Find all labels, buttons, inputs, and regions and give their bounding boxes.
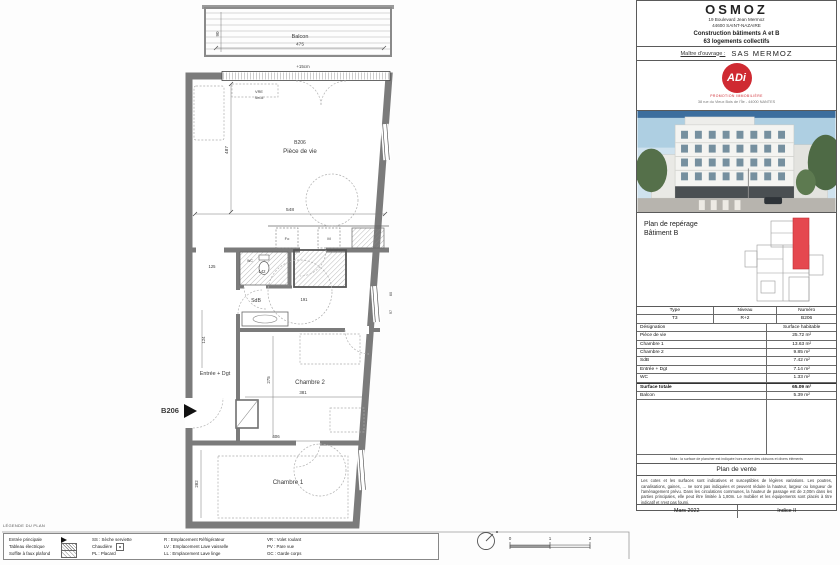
table-row: WC1.33 m² [637, 374, 836, 382]
svg-text:406: 406 [272, 434, 280, 439]
legend-col4: VR : Volet roulant PV : Pare vue GC : Ga… [267, 536, 301, 557]
val-numero: B206 [776, 315, 836, 322]
col-niveau: Niveau [713, 307, 777, 314]
table-row: Chambre 29.85 m² [637, 349, 836, 357]
val-niveau: R+2 [713, 315, 777, 322]
wc-label: WC [247, 259, 253, 263]
svg-text:1: 1 [549, 536, 552, 541]
living-room-label: Pièce de vie [283, 148, 317, 155]
legend-item: LV : Emplacement Lave vaisselle [164, 544, 228, 549]
legend-title: LÉGENDE DU PLAN [3, 523, 45, 528]
balcony-depth-dim: 90 [215, 31, 220, 37]
legend-col2: SS : Sèche serviette Chaudière PL : Plac… [92, 536, 132, 557]
adi-address: 38 rue du Vieux Bois de l'Île - 44000 NA… [637, 100, 836, 104]
maitre-ouvrage-value: SAS MERMOZ [731, 49, 792, 58]
legend-item: Soffite à faux plafond [9, 551, 55, 556]
svg-text:191: 191 [301, 297, 309, 302]
floor-plan-drawing: Balcon 475 90 +15cm VRE Seuil [0, 0, 635, 560]
north-arrow-icon [478, 531, 499, 550]
table-header-row: Type Niveau Numéro [637, 307, 836, 315]
adi-logo: ADi [722, 63, 752, 93]
seuil-note: Seuil [255, 95, 264, 100]
maitre-ouvrage-row: Maître d'ouvrage : SAS MERMOZ [637, 47, 836, 61]
plan-de-vente-title: Plan de vente [637, 464, 836, 476]
micro-label: M [327, 236, 330, 241]
maitre-ouvrage-label: Maître d'ouvrage : [681, 51, 726, 57]
boiler-icon [116, 543, 124, 551]
adi-slogan: PROMOTION IMMOBILIÈRE [637, 94, 836, 98]
svg-text:125: 125 [209, 264, 217, 269]
table-row: Pièce de vie25.72 m² [637, 332, 836, 340]
legend-col3: R : Emplacement Réfrigérateur LV : Empla… [164, 536, 228, 557]
legend: Entrée principale Tableau électrique Sof… [3, 533, 439, 560]
highlighted-unit [793, 218, 809, 269]
date-indice-row: Mars 2022 Indice II [637, 505, 836, 518]
table-value-row: T3 R+2 B206 [637, 315, 836, 323]
table-balcony-row: Balcon5.39 m² [637, 392, 836, 400]
legend-item: PV : Pare vue [267, 544, 294, 549]
legend-item: GC : Garde corps [267, 551, 301, 556]
balcony-label: Balcon [292, 34, 309, 40]
svg-text:381: 381 [299, 390, 307, 395]
table-row: SdB7.42 m² [637, 357, 836, 365]
val-type: T3 [637, 315, 713, 322]
surface-table: Type Niveau Numéro T3 R+2 B206 Désignati… [637, 307, 836, 455]
legend-item: Entrée principale [9, 537, 55, 542]
plan-sheet: Balcon 475 90 +15cm VRE Seuil [0, 0, 840, 560]
table-empty-area [637, 400, 836, 455]
legend-item: SS : Sèche serviette [92, 537, 132, 542]
project-name: OSMOZ [637, 2, 836, 17]
entrance-unit-label: B206 [161, 406, 179, 415]
svg-text:275: 275 [266, 376, 271, 384]
plan-date: Mars 2022 [637, 505, 737, 518]
building-photo [637, 111, 836, 213]
entry-label: Entrée + Dgt [200, 371, 231, 377]
svg-text:124: 124 [201, 336, 206, 344]
bedroom2-label: Chambre 2 [295, 380, 325, 386]
table-row: Chambre 113.63 m² [637, 341, 836, 349]
legend-item: R : Emplacement Réfrigérateur [164, 537, 225, 542]
oven-label: Fo [285, 236, 290, 241]
bathroom-sink [242, 312, 288, 326]
legend-item: VR : Volet roulant [267, 537, 301, 542]
balcony-dim: 475 [296, 42, 304, 48]
building-render [637, 111, 836, 212]
disclaimer-text: Les cotes et les surfaces sont indicativ… [637, 476, 836, 505]
table-total-row: Surface totale65.09 m² [637, 383, 836, 392]
reperage-building: Bâtiment B [644, 229, 698, 238]
shower [294, 250, 346, 287]
threshold-note: +15cm [296, 64, 310, 69]
sink-counter [352, 228, 384, 248]
vre-note: VRE [255, 89, 263, 94]
svg-text:60: 60 [389, 292, 393, 296]
svg-text:0: 0 [509, 536, 512, 541]
legend-item: Tableau électrique [9, 544, 55, 549]
svg-text:97: 97 [389, 310, 393, 314]
construction-line-2: 63 logements collectifs [637, 39, 836, 47]
svg-text:282: 282 [194, 480, 199, 488]
reperage-title: Plan de repérage [644, 220, 698, 229]
legend-item: Chaudière [92, 544, 112, 549]
table-row: Entrée + Dgt7.14 m² [637, 366, 836, 374]
title-block: OSMOZ 19 Boulevard Jean Mermoz 44600 SAI… [636, 0, 837, 511]
plan-indice: Indice II [737, 505, 837, 518]
legend-item: LL : Emplacement Lave linge [164, 551, 220, 556]
svg-text:142: 142 [259, 269, 267, 274]
reperage-section: Plan de repérage Bâtiment B [637, 213, 836, 307]
soffit-icon [61, 550, 77, 558]
construction-line-1: Construction bâtiments A et B [637, 31, 836, 39]
col-numero: Numéro [776, 307, 836, 314]
nota-line: Nota : la surface de plancher est indiqu… [637, 455, 836, 464]
col-type: Type [637, 307, 713, 314]
unit-number-label: B206 [294, 140, 306, 146]
scale-bar: 0 1 2 [509, 536, 592, 549]
svg-text:548: 548 [286, 207, 294, 213]
table-subheader-row: Désignation Surface habitable [637, 324, 836, 332]
project-address-2: 44600 SAINT-NAZAIRE [637, 23, 836, 29]
bedroom1-label: Chambre 1 [273, 479, 304, 486]
legend-col1: Entrée principale Tableau électrique Sof… [9, 536, 77, 557]
svg-text:487: 487 [224, 146, 230, 154]
balcony: Balcon 475 90 [202, 5, 394, 56]
project-header: OSMOZ 19 Boulevard Jean Mermoz 44600 SAI… [637, 1, 836, 47]
key-plan [737, 215, 833, 305]
bathroom-label: SdB [251, 298, 261, 304]
svg-text:2: 2 [589, 536, 592, 541]
legend-item: PL : Placard [92, 551, 116, 556]
developer-logo-section: ADi PROMOTION IMMOBILIÈRE 38 rue du Vieu… [637, 61, 836, 111]
